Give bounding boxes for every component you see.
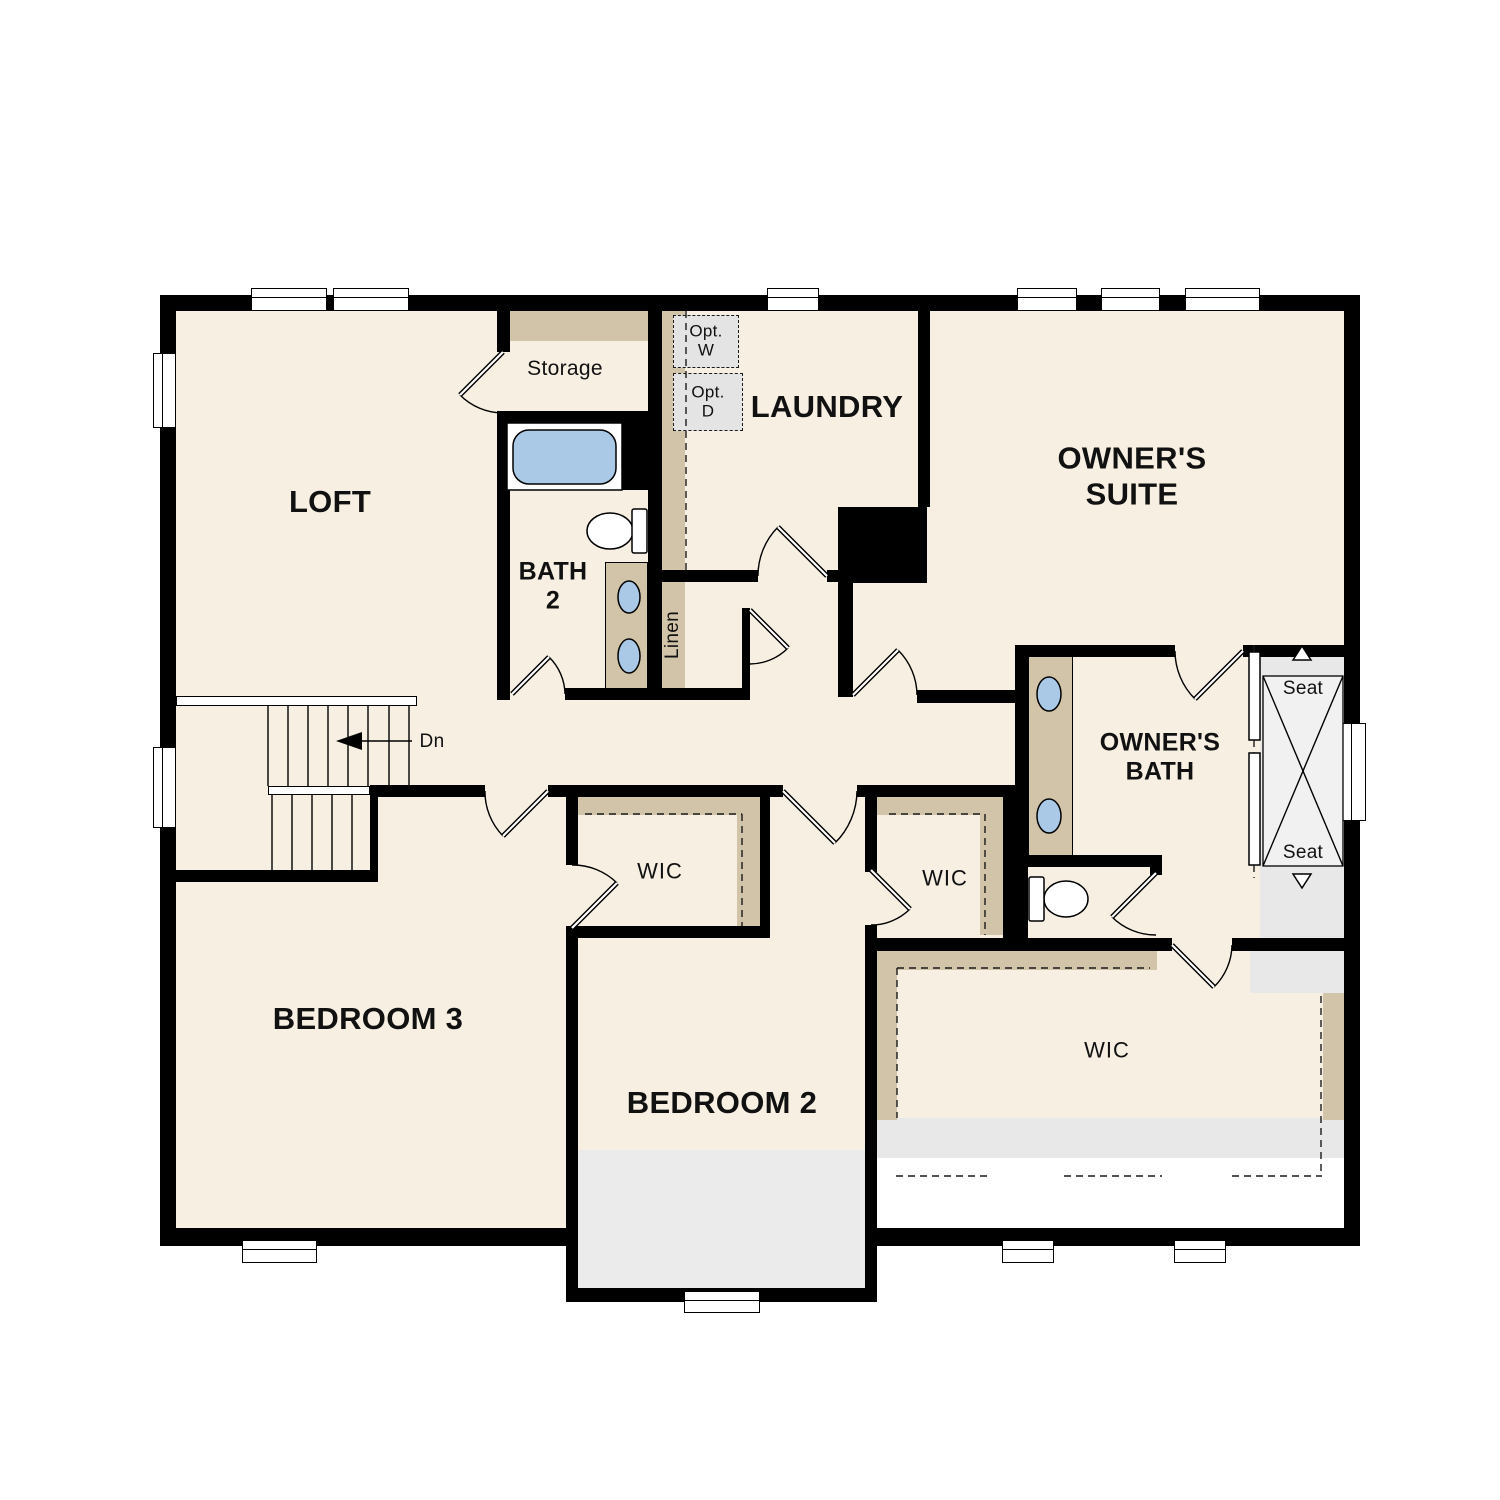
window <box>1002 1240 1054 1263</box>
room-label-owners-suite: OWNER'S SUITE <box>1058 440 1207 511</box>
room-label-storage: Storage <box>527 357 603 381</box>
room-label-bedroom2: BEDROOM 2 <box>627 1085 817 1121</box>
room-label-bedroom3: BEDROOM 3 <box>273 1001 463 1037</box>
wall-segment <box>865 938 877 1302</box>
room-label-linen: Linen <box>662 611 684 659</box>
optional-dryer-label: Opt. D <box>691 383 724 420</box>
room-label-wic-bedroom3: WIC <box>637 858 683 883</box>
wall-segment <box>857 785 1015 797</box>
wall-segment <box>1028 855 1162 867</box>
bath2-vanity <box>605 562 648 689</box>
stairs-down-label: Dn <box>420 731 445 753</box>
wall-segment <box>917 690 1017 703</box>
shower-seat-label-bottom: Seat <box>1283 842 1323 864</box>
room-label-wic-owners: WIC <box>1084 1037 1130 1062</box>
wic3-shelf-band-rightarm <box>1323 993 1344 1120</box>
room-label-laundry: LAUNDRY <box>751 389 904 425</box>
window <box>1342 723 1366 821</box>
wall-segment <box>160 870 378 882</box>
optional-washer-label: Opt. W <box>689 322 722 359</box>
window <box>333 288 409 311</box>
wall-segment <box>865 938 1172 951</box>
wic-lower-strip <box>877 1118 1344 1158</box>
wall-segment <box>1243 645 1344 657</box>
wall-segment <box>865 1228 1360 1246</box>
wall-segment <box>497 295 510 352</box>
shower-seat-label-top: Seat <box>1283 678 1323 700</box>
wic3-shelf-band-left <box>877 951 897 1120</box>
window <box>153 747 176 828</box>
wall-segment <box>1150 867 1162 875</box>
bedroom2-bay-floor <box>578 1150 865 1288</box>
wall-segment <box>565 688 750 700</box>
wall-segment <box>622 423 648 490</box>
owners-vanity <box>1028 650 1073 856</box>
floor-plan: LOFT Storage BATH 2 LAUNDRY OWNER'S SUIT… <box>0 0 1500 1500</box>
wall-segment <box>370 785 378 877</box>
room-label-wic-bedroom2: WIC <box>922 865 968 890</box>
wall-segment <box>865 925 877 938</box>
wall-segment <box>497 413 510 700</box>
wall-segment <box>648 570 758 582</box>
wall-segment <box>1003 785 1015 938</box>
wall-segment <box>760 785 770 938</box>
wic-window-bay <box>877 1158 1344 1229</box>
wall-segment <box>648 295 662 700</box>
wall-segment <box>160 1228 578 1246</box>
window <box>1174 1240 1226 1263</box>
window <box>1017 288 1077 311</box>
chase <box>838 507 927 583</box>
wall-segment <box>865 785 877 872</box>
wall-segment <box>566 926 770 938</box>
wall-segment <box>548 785 783 797</box>
window <box>684 1291 760 1313</box>
room-label-loft: LOFT <box>289 484 371 520</box>
wall-segment <box>497 688 510 700</box>
wall-segment <box>1232 938 1345 951</box>
wic-entry-floor <box>1250 951 1344 993</box>
window <box>153 353 176 428</box>
wic1-shelf-band-top <box>578 797 760 815</box>
wall-segment <box>1015 645 1028 951</box>
window <box>1185 288 1260 311</box>
storage-shelf-band <box>510 311 648 341</box>
stair-landing <box>268 786 370 795</box>
wic1-shelf-band-right <box>737 797 760 926</box>
wall-segment <box>566 928 578 1230</box>
wall-segment <box>370 785 485 797</box>
window <box>251 288 327 311</box>
wall-segment <box>918 295 930 507</box>
wall-segment <box>566 785 578 865</box>
wall-segment <box>838 583 853 697</box>
wic3-shelf-band-top <box>877 951 1157 970</box>
window <box>242 1240 317 1263</box>
wall-segment <box>1015 645 1175 657</box>
room-label-owners-bath: OWNER'S BATH <box>1100 728 1221 786</box>
window <box>767 288 819 311</box>
wall-segment <box>497 411 661 423</box>
window <box>1101 288 1160 311</box>
stair-railing <box>176 696 417 706</box>
room-label-bath2: BATH 2 <box>519 557 588 615</box>
wall-segment <box>742 608 750 688</box>
wic2-shelf-band-right <box>980 797 1003 935</box>
